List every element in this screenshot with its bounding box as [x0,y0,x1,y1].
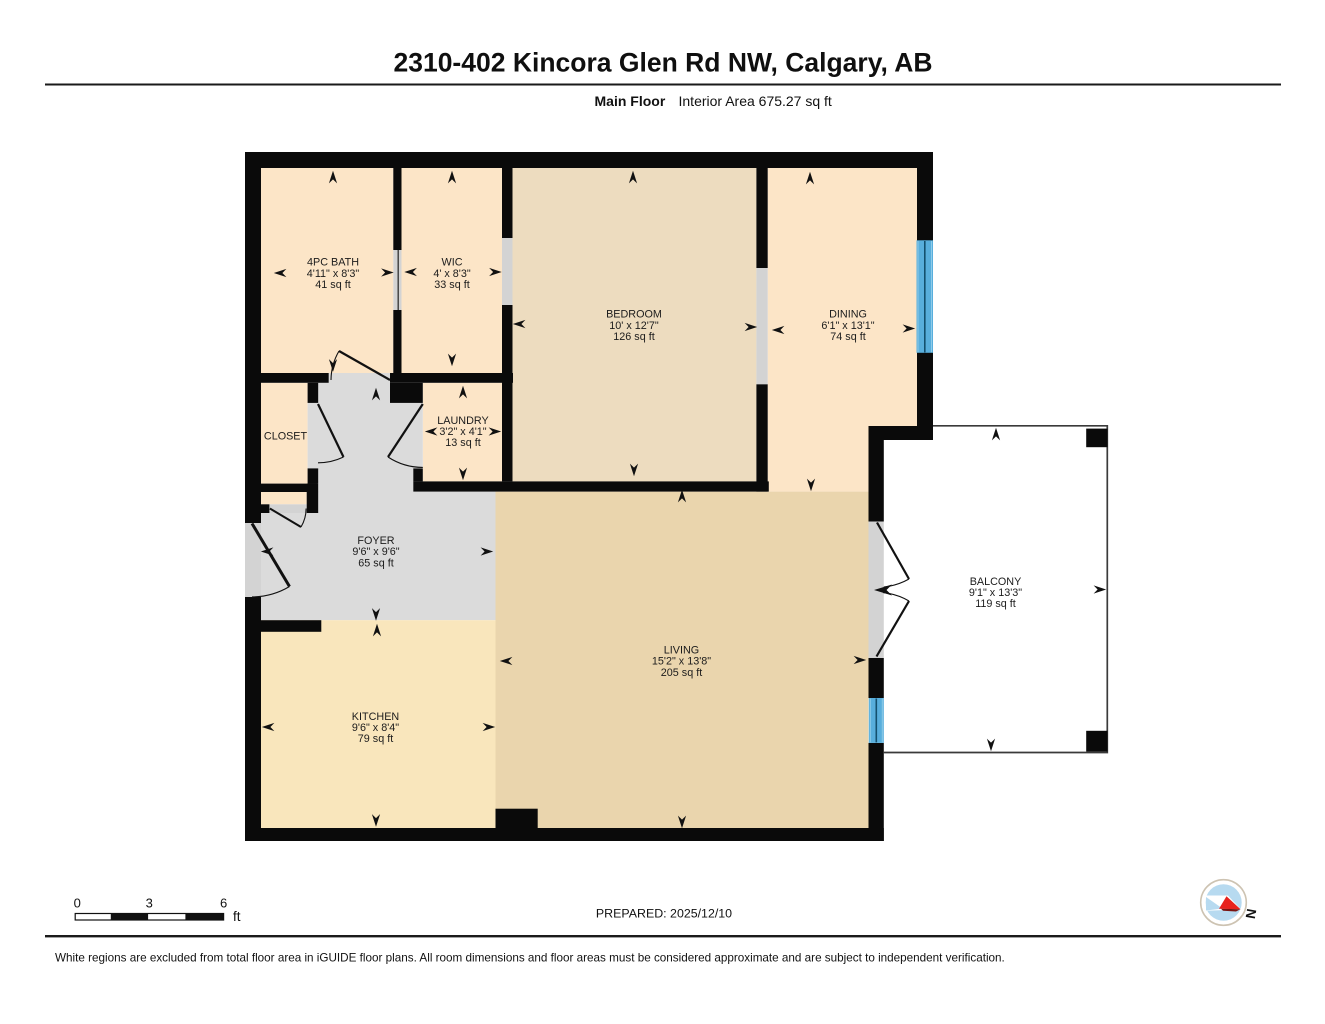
svg-text:3: 3 [146,896,153,911]
svg-text:119 sq ft: 119 sq ft [975,598,1016,610]
svg-text:4PC BATH: 4PC BATH [307,256,359,268]
svg-text:FOYER: FOYER [357,535,394,547]
svg-text:4'11" x 8'3": 4'11" x 8'3" [307,268,360,280]
svg-text:WIC: WIC [442,256,463,268]
svg-text:205 sq ft: 205 sq ft [661,667,702,679]
svg-text:6'1" x 13'1": 6'1" x 13'1" [821,320,874,332]
svg-text:2310-402 Kincora Glen Rd NW, C: 2310-402 Kincora Glen Rd NW, Calgary, AB [393,48,932,78]
svg-text:3'2" x 4'1": 3'2" x 4'1" [439,426,486,438]
svg-text:BEDROOM: BEDROOM [606,309,662,321]
svg-text:79 sq ft: 79 sq ft [358,733,393,745]
svg-text:10' x 12'7": 10' x 12'7" [609,320,659,332]
svg-text:LIVING: LIVING [664,645,699,657]
svg-text:CLOSET: CLOSET [264,431,308,443]
svg-text:KITCHEN: KITCHEN [352,711,399,723]
svg-text:BALCONY: BALCONY [970,576,1022,588]
svg-text:9'1" x 13'3": 9'1" x 13'3" [969,587,1022,599]
svg-text:9'6" x 9'6": 9'6" x 9'6" [352,546,399,558]
svg-text:LAUNDRY: LAUNDRY [437,415,488,427]
svg-text:White regions are excluded fro: White regions are excluded from total fl… [55,952,1005,965]
svg-text:126 sq ft: 126 sq ft [613,331,654,343]
svg-text:Interior Area 675.27 sq ft: Interior Area 675.27 sq ft [679,93,832,109]
svg-text:33 sq ft: 33 sq ft [434,279,469,291]
svg-text:PREPARED: 2025/12/10: PREPARED: 2025/12/10 [596,907,732,921]
svg-text:6: 6 [220,896,227,911]
svg-text:74 sq ft: 74 sq ft [830,331,865,343]
svg-text:41 sq ft: 41 sq ft [315,279,350,291]
svg-text:15'2" x 13'8": 15'2" x 13'8" [652,656,711,668]
svg-text:9'6" x 8'4": 9'6" x 8'4" [352,722,399,734]
svg-text:DINING: DINING [829,309,867,321]
svg-text:4' x 8'3": 4' x 8'3" [433,268,471,280]
svg-text:0: 0 [74,896,81,911]
svg-text:65 sq ft: 65 sq ft [358,557,393,569]
svg-text:13 sq ft: 13 sq ft [445,437,480,449]
svg-text:Main Floor: Main Floor [595,93,666,109]
svg-text:ft: ft [233,909,241,924]
